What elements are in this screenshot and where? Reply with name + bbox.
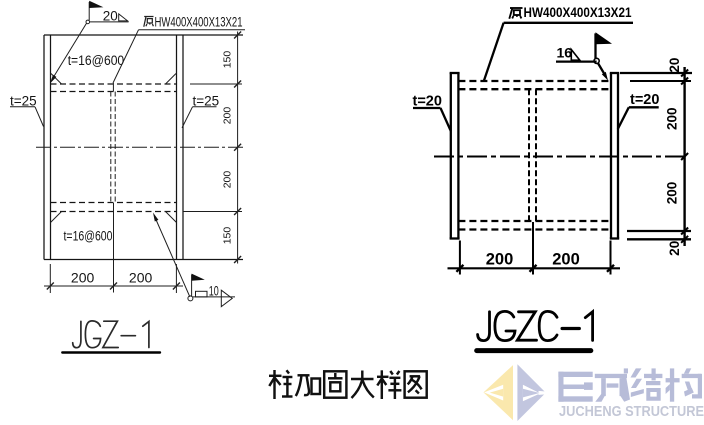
svg-text:200: 200 bbox=[665, 182, 680, 205]
svg-text:HW400X400X13X21: HW400X400X13X21 bbox=[524, 5, 632, 20]
svg-text:JUCHENG STRUCTURE: JUCHENG STRUCTURE bbox=[559, 404, 704, 420]
svg-text:200: 200 bbox=[71, 270, 95, 286]
svg-text:10: 10 bbox=[209, 283, 219, 298]
svg-text:200: 200 bbox=[222, 171, 234, 189]
svg-text:20: 20 bbox=[103, 9, 118, 24]
svg-text:16: 16 bbox=[557, 45, 573, 61]
svg-text:t=25: t=25 bbox=[193, 93, 220, 108]
svg-text:200: 200 bbox=[222, 107, 234, 125]
svg-text:t=16@600: t=16@600 bbox=[64, 228, 113, 243]
svg-text:20: 20 bbox=[667, 58, 682, 73]
svg-text:20: 20 bbox=[667, 241, 682, 256]
svg-text:t=20: t=20 bbox=[630, 92, 659, 108]
svg-text:200: 200 bbox=[552, 250, 580, 268]
svg-text:t=25: t=25 bbox=[10, 93, 37, 108]
svg-text:t=16@600: t=16@600 bbox=[68, 53, 125, 68]
svg-text:200: 200 bbox=[129, 270, 153, 286]
svg-text:HW400X400X13X21: HW400X400X13X21 bbox=[155, 15, 243, 30]
svg-text:150: 150 bbox=[222, 227, 234, 245]
svg-text:200: 200 bbox=[665, 107, 680, 130]
svg-text:200: 200 bbox=[486, 250, 514, 268]
svg-text:150: 150 bbox=[222, 51, 234, 69]
